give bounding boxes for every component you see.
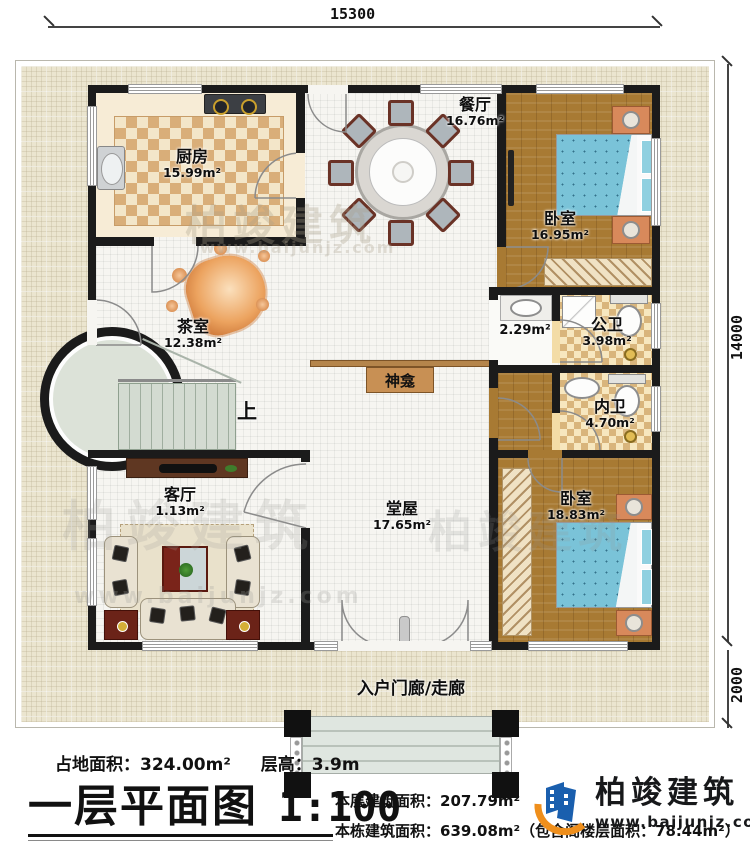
plant-decor-icon [225, 465, 237, 472]
stairs-up-label: 上 [232, 400, 262, 422]
sheet-title-row: 一层平面图 1:100 [28, 770, 401, 834]
living-room-window-south [142, 641, 258, 651]
bed-top [556, 134, 652, 216]
doorway [497, 247, 506, 287]
blanket-fold [613, 523, 637, 607]
tea-room-label: 茶室12.38m² [148, 318, 238, 350]
living-room-label: 客厅1.13m² [134, 486, 226, 518]
tea-stool-icon [258, 250, 270, 262]
tv-cabinet [126, 458, 248, 478]
public-bath-window [651, 303, 661, 349]
floor-drain-icon [624, 348, 637, 361]
doorway [308, 85, 348, 94]
porch-dimension-value: 2000 [728, 667, 746, 703]
side-dimension-value: 14000 [728, 315, 746, 360]
wardrobe-top [544, 258, 652, 286]
brand-logo-icon [533, 778, 587, 840]
pillow [641, 569, 652, 605]
burner-icon [213, 99, 229, 115]
wall [88, 237, 154, 246]
main-hall-label: 堂屋17.65m² [352, 500, 452, 532]
public-bath-label: 公卫3.98m² [570, 316, 644, 348]
doorway [87, 300, 97, 345]
wall [196, 237, 306, 246]
kitchen-window [128, 84, 202, 94]
step-rail [500, 737, 512, 775]
brand-logo: 柏竣建筑 www.baijunjz.com [533, 778, 750, 840]
dining-chair [388, 100, 414, 126]
wall [562, 450, 660, 458]
bedroom-top-label: 卧室16.95m² [514, 210, 606, 242]
tv-icon [159, 464, 217, 473]
porch-column [284, 710, 311, 737]
bedroom-bottom-window [528, 641, 628, 651]
toilet-tank [610, 294, 648, 304]
wall [296, 198, 305, 246]
sofa-cushion [179, 605, 195, 621]
table-knob-icon [239, 621, 250, 632]
doorway [552, 413, 560, 450]
brand-website: www.baijunjz.com [595, 813, 750, 831]
hall-sidelight-right [470, 641, 492, 651]
burner-icon [241, 99, 257, 115]
wall [489, 438, 498, 650]
living-room-window-west1 [87, 466, 97, 520]
title-underline [28, 834, 333, 837]
wall [88, 450, 310, 458]
wall [489, 360, 498, 388]
stair-rail [118, 379, 236, 382]
dining-chair [448, 160, 474, 186]
nightstand [612, 216, 650, 244]
washbasin-icon [510, 299, 542, 317]
wall [296, 85, 305, 153]
wall [497, 450, 528, 458]
coffee-table [162, 546, 208, 592]
sofa-cushion [149, 607, 166, 624]
nightstand [616, 610, 652, 636]
wall [301, 528, 310, 650]
porch-column [492, 710, 519, 737]
shrine-altar: 神龛 [366, 367, 434, 393]
sofa-cushion [112, 579, 129, 596]
doorway [528, 450, 562, 458]
bedroom-bottom-label: 卧室18.83m² [528, 490, 624, 522]
wash-area-label: 2.29m² [496, 324, 554, 339]
living-room-window-west2 [87, 538, 97, 606]
pillow [641, 529, 652, 565]
shrine-label: 神龛 [385, 372, 415, 390]
brand-name: 柏竣建筑 [595, 778, 750, 809]
dim-tick [651, 15, 662, 26]
wall [489, 287, 498, 300]
kitchen-label: 厨房15.99m² [146, 148, 238, 180]
wall [552, 295, 560, 321]
top-dimension-value: 15300 [330, 5, 375, 23]
dining-chair [328, 160, 354, 186]
dining-chair [388, 220, 414, 246]
tea-stool-icon [172, 268, 187, 283]
floor-plan-sheet: 15300 14000 2000 上 [0, 0, 750, 852]
sheet-scale: 1:100 [278, 783, 401, 831]
top-dimension-line [48, 26, 660, 28]
dim-tick [43, 15, 54, 26]
title-underline-thin [28, 840, 333, 841]
floor-drain-icon [624, 430, 637, 443]
sink-basin [101, 153, 123, 185]
stair-treads [118, 383, 236, 450]
door-mullion [399, 616, 410, 643]
side-table [226, 610, 260, 640]
bedroom-top-window [536, 84, 624, 94]
doorway [296, 153, 305, 198]
blanket-fold [615, 135, 637, 215]
kitchen-sink-icon [97, 146, 125, 190]
bedroom-top-side-window [651, 138, 661, 226]
tv-wall-icon [508, 150, 514, 206]
dining-label: 餐厅16.76m² [430, 96, 520, 128]
nightstand [612, 106, 650, 134]
stove-icon [204, 94, 266, 114]
porch-label: 入户门廊/走廊 [338, 680, 484, 699]
washbasin-icon [564, 377, 600, 399]
doorway [338, 641, 470, 651]
dining-window [420, 84, 502, 94]
tea-stool-icon [256, 298, 269, 311]
corridor-floor [498, 373, 552, 450]
toilet-tank [608, 374, 646, 384]
wall [497, 365, 660, 373]
wall [497, 287, 660, 295]
table-knob-icon [117, 621, 128, 632]
dining-table-hub [392, 161, 414, 183]
wall [552, 373, 560, 413]
porch-column [492, 772, 519, 798]
bed-bottom [556, 522, 652, 608]
tea-stool-icon [166, 300, 178, 312]
sofa-cushion [234, 579, 251, 596]
sofa-cushion [112, 545, 130, 563]
side-table [104, 610, 138, 640]
ensuite-bath-window [651, 386, 661, 432]
sheet-title: 一层平面图 [28, 770, 258, 834]
wall [301, 450, 310, 462]
kitchen-window-west [87, 106, 97, 186]
table-plant-icon [179, 563, 193, 577]
hall-sidelight-left [314, 641, 338, 651]
doorway [489, 388, 498, 438]
ensuite-bath-label: 内卫4.70m² [572, 398, 648, 430]
shrine-shelf [310, 360, 490, 367]
